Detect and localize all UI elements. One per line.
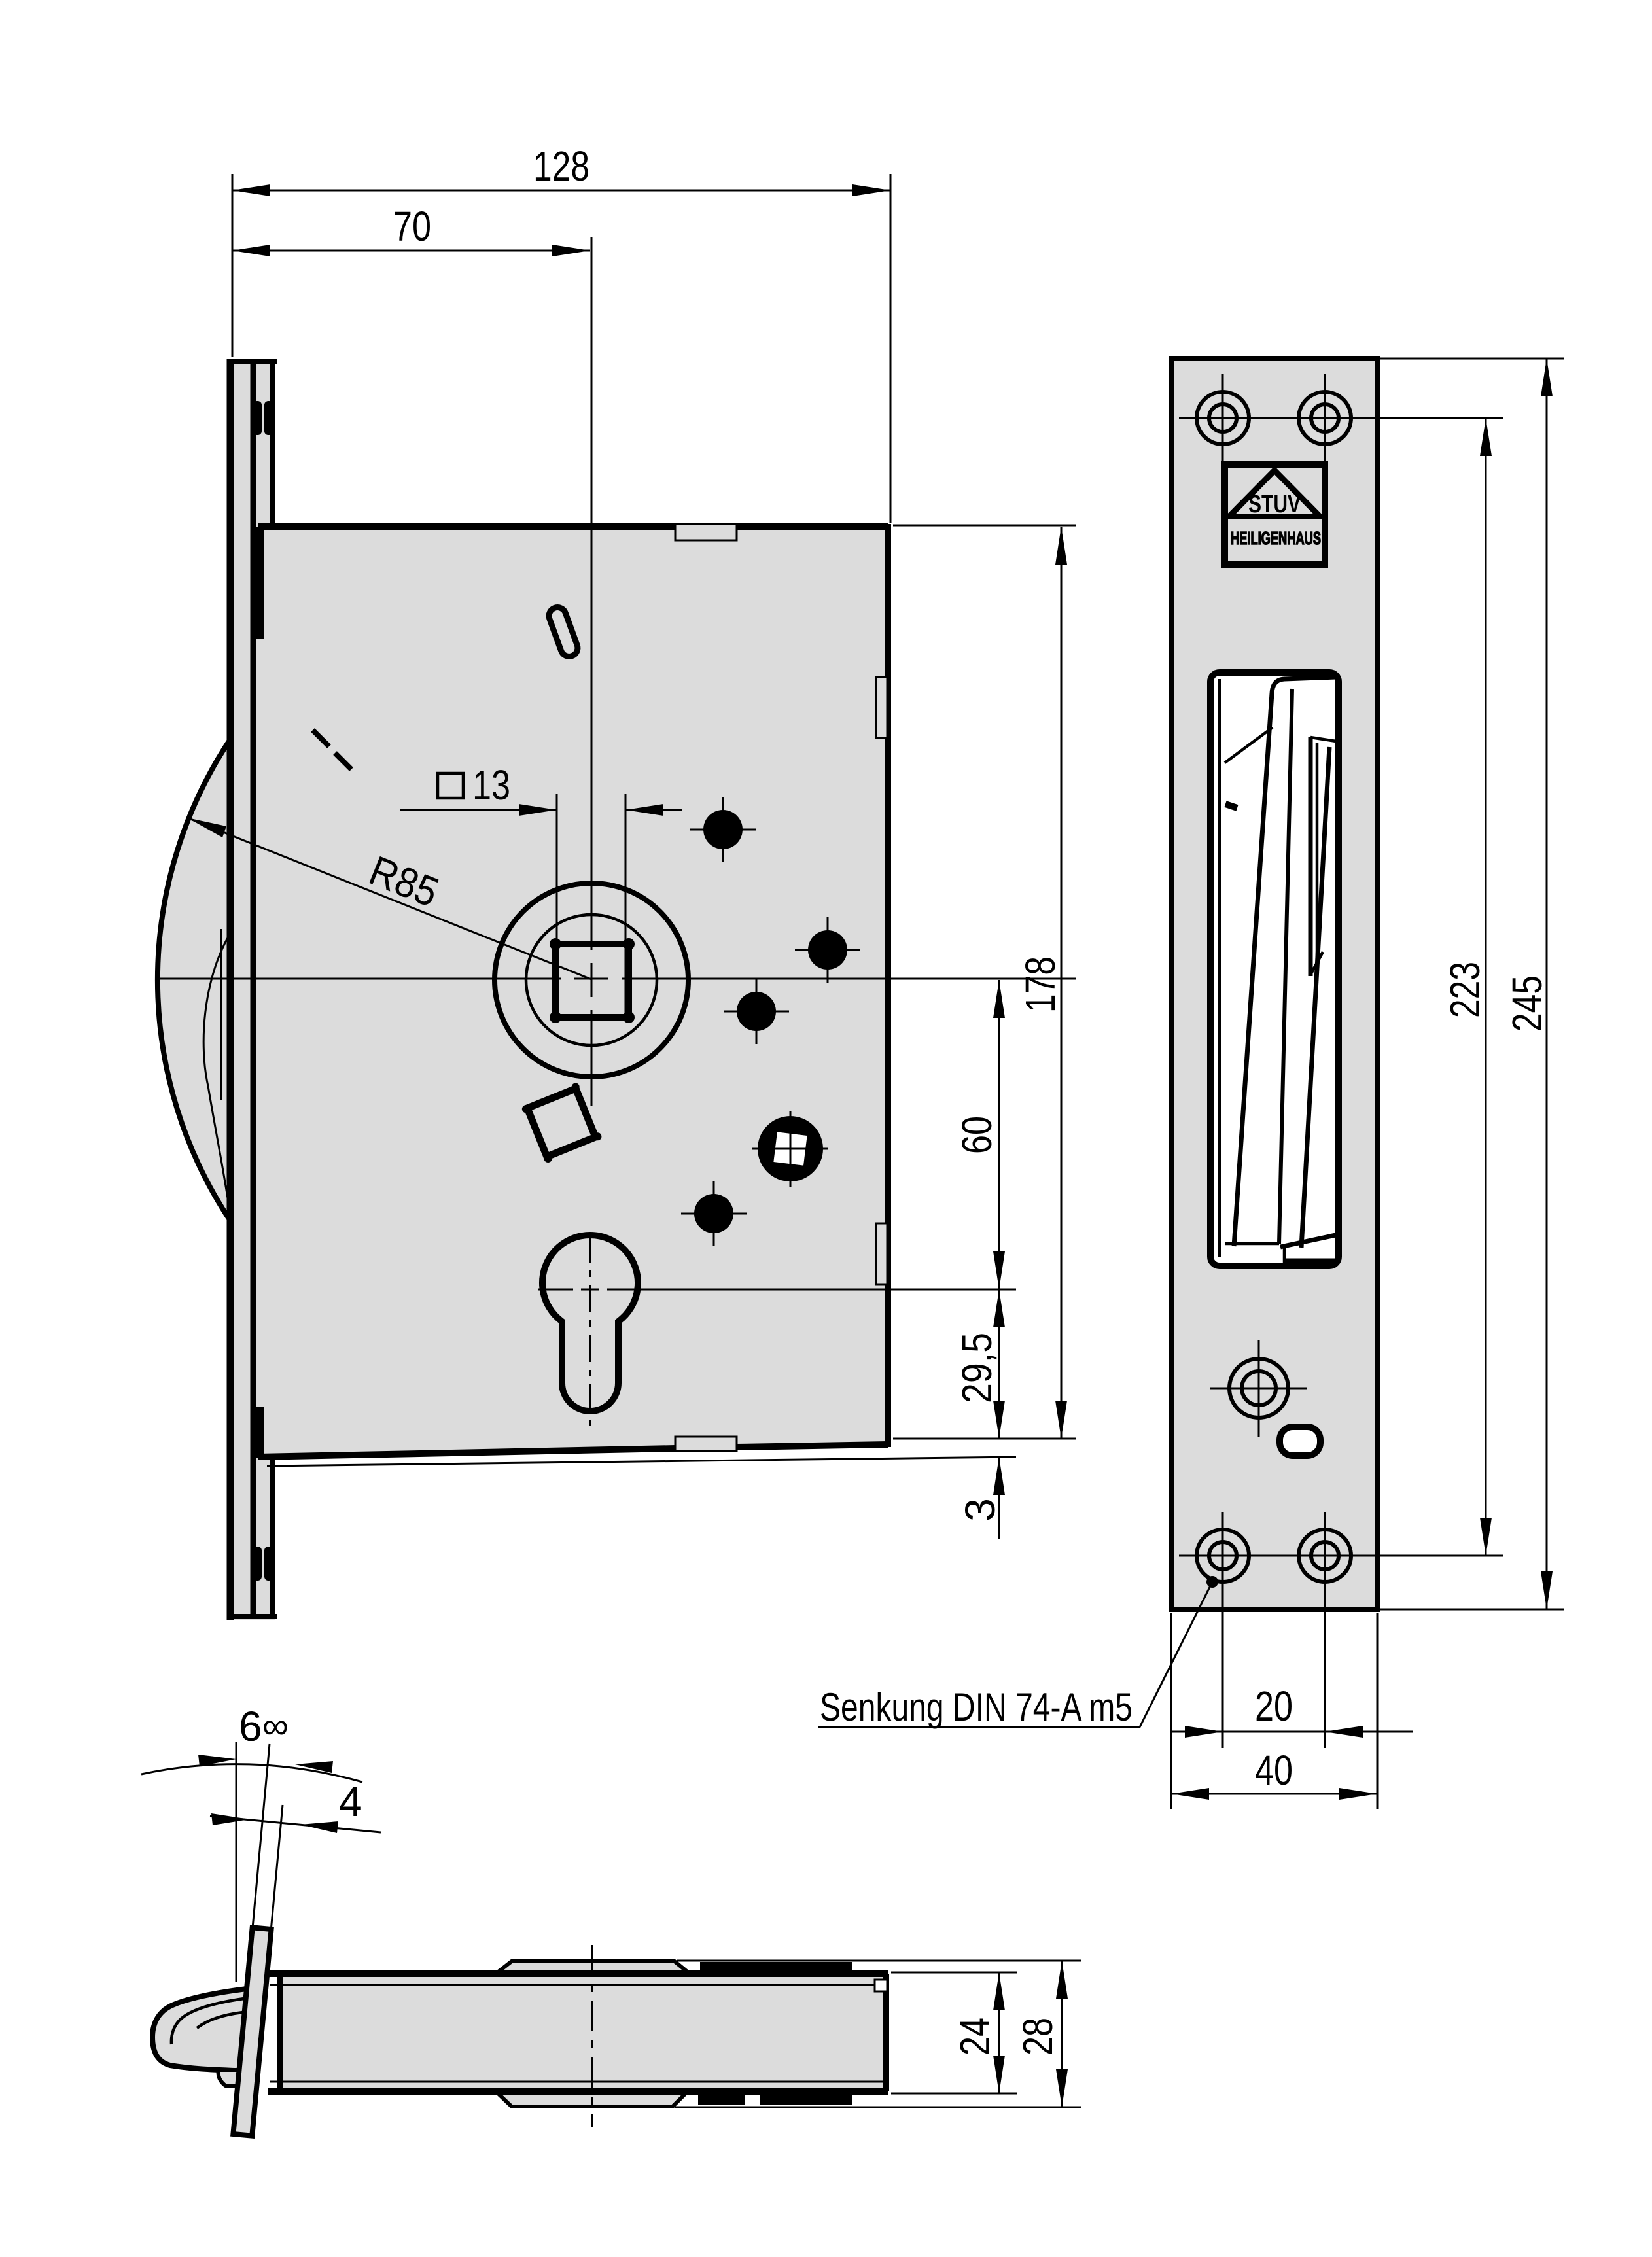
svg-text:∞: ∞ [262,1705,289,1746]
svg-text:40: 40 [1255,1747,1293,1794]
svg-text:6: 6 [239,1703,262,1750]
svg-text:HEILIGENHAUS: HEILIGENHAUS [1231,528,1321,548]
svg-text:Senkung DIN 74-A m5: Senkung DIN 74-A m5 [820,1685,1133,1729]
svg-text:60: 60 [953,1116,1000,1154]
svg-text:70: 70 [393,203,431,250]
svg-text:13: 13 [472,761,510,809]
svg-text:223: 223 [1441,962,1488,1018]
svg-text:3: 3 [957,1498,1004,1522]
svg-text:245: 245 [1503,975,1551,1032]
svg-text:24: 24 [951,2018,998,2056]
svg-text:178: 178 [1017,956,1064,1013]
svg-text:29,5: 29,5 [953,1333,1000,1403]
svg-text:28: 28 [1014,2018,1061,2056]
svg-text:128: 128 [533,143,589,190]
svg-text:4: 4 [339,1778,362,1825]
svg-text:20: 20 [1255,1683,1293,1730]
